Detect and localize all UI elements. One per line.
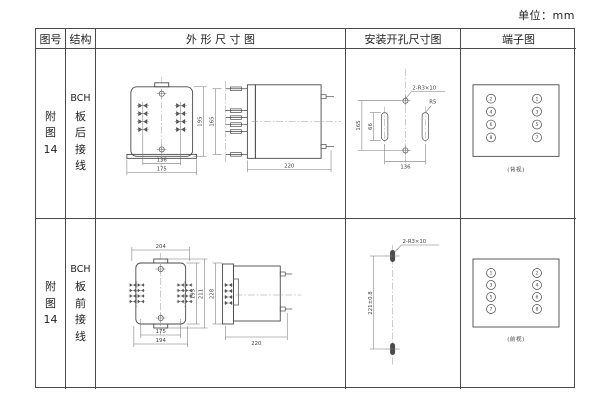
header-install: 安装开孔尺寸图	[346, 29, 461, 49]
install-drawing-row2: 2-R3×10 221±0.8	[346, 219, 461, 389]
header-figure-no: 图号	[36, 29, 66, 49]
terminal-number: 6	[490, 122, 493, 128]
figure-no-row2: 附 图 14	[36, 219, 66, 389]
terminal-number: 7	[490, 307, 493, 313]
install-drawing-row1: 2-R3×10 R5 165 66 136	[346, 49, 461, 219]
dim-install-height: 165	[356, 120, 362, 130]
dim-side-height: 228	[210, 288, 216, 299]
dimension-table: 图号 结构 外 形 尺 寸 图 安装开孔尺寸图 端子图 附 图 14 BCH 板…	[35, 28, 575, 388]
dim-slot-spacing: 66	[368, 123, 374, 130]
dim-side-depth: 220	[251, 341, 262, 347]
install-drawing-front-svg: 2-R3×10 221±0.8	[346, 219, 460, 389]
terminal-number: 7	[536, 135, 539, 141]
terminal-view-caption: (前视)	[507, 335, 525, 343]
dim-front-height: 195	[198, 116, 204, 126]
unit-label: 单位：mm	[518, 7, 575, 23]
dim-front-outer-width: 175	[157, 166, 167, 172]
terminal-number: 4	[490, 109, 493, 115]
terminal-number: 4	[536, 283, 539, 289]
header-terminal: 端子图	[461, 29, 576, 49]
outline-drawing-rear-svg: 136 175 195 165	[96, 49, 345, 218]
terminal-view-caption: (背视)	[507, 165, 525, 173]
dim-front-inner-height: 195	[191, 289, 197, 299]
drawing-sheet: 单位：mm 图号 结构 外 形 尺 寸 图 安装开孔尺寸图 端子图 附 图 14…	[0, 0, 600, 400]
terminal-number: 1	[490, 271, 493, 277]
outline-drawing-row2: 204 195 211 175 194	[96, 219, 346, 389]
terminal-number: 8	[490, 135, 493, 141]
install-drawing-rear-svg: 2-R3×10 R5 165 66 136	[346, 49, 460, 218]
label-slot-spec: 2-R3×10	[403, 239, 427, 245]
dim-install-width: 136	[400, 164, 411, 170]
front-view: 136 175 195	[127, 77, 207, 175]
dim-front-inner-width: 136	[157, 157, 168, 163]
label-slot-radius: R5	[429, 100, 436, 106]
terminal-number: 3	[536, 109, 539, 115]
dim-install-height: 221±0.8	[368, 291, 374, 315]
terminal-diagram-row1: 2 4 6 8 1 3 5 7 (背视)	[461, 49, 576, 219]
label-slot-spec: 2-R3×10	[412, 86, 436, 92]
outline-drawing-front-svg: 204 195 211 175 194	[96, 219, 345, 389]
terminal-number: 3	[490, 283, 493, 289]
dim-front-outer-height: 211	[199, 289, 205, 299]
dim-side-height: 165	[210, 116, 216, 126]
structure-row1: BCH 板 后 接 线	[66, 49, 96, 219]
terminal-number: 8	[536, 307, 539, 313]
header-structure: 结构	[66, 29, 96, 49]
terminal-number: 1	[536, 96, 539, 102]
terminal-number: 2	[536, 271, 539, 277]
side-view: 165 220	[210, 81, 341, 172]
side-view: 228 220	[210, 263, 302, 347]
terminal-diagram-front-svg: 1 3 5 7 2 4 6 8 (前视)	[461, 219, 576, 389]
front-view: 204 195 211 175 194	[129, 244, 208, 347]
structure-row2: BCH 板 前 接 线	[66, 219, 96, 389]
figure-no-row1: 附 图 14	[36, 49, 66, 219]
terminal-diagram-row2: 1 3 5 7 2 4 6 8 (前视)	[461, 219, 576, 389]
dim-front-top-width: 204	[156, 244, 167, 250]
outline-drawing-row1: 136 175 195 165	[96, 49, 346, 219]
terminal-number: 2	[490, 96, 493, 102]
header-outline: 外 形 尺 寸 图	[96, 29, 346, 49]
terminal-diagram-rear-svg: 2 4 6 8 1 3 5 7 (背视)	[461, 49, 576, 218]
terminal-number: 5	[536, 122, 539, 128]
terminal-number: 5	[490, 295, 493, 301]
dim-side-depth: 220	[284, 163, 295, 169]
dim-front-bottom-inner: 175	[156, 329, 166, 335]
terminal-number: 6	[536, 295, 539, 301]
dim-front-bottom-outer: 194	[156, 338, 167, 344]
